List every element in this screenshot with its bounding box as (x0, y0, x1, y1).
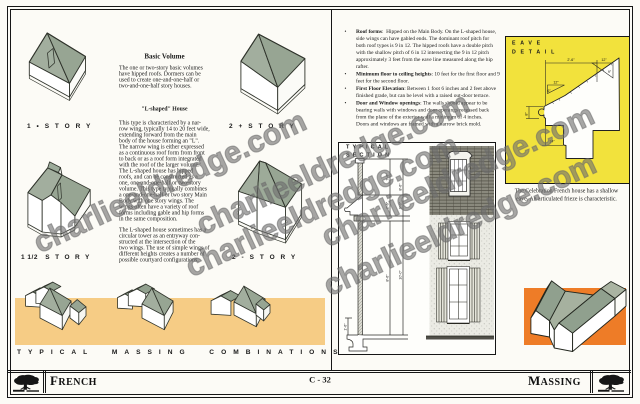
svg-text:12": 12" (601, 58, 607, 62)
svg-text:14": 14" (549, 140, 555, 144)
svg-text:7'-6": 7'-6" (385, 173, 389, 181)
svg-text:12": 12" (553, 81, 559, 85)
svg-text:10'-0": 10'-0" (398, 270, 402, 280)
svg-text:9'-0": 9'-0" (398, 201, 402, 209)
svg-text:8'-6": 8'-6" (398, 183, 402, 191)
svg-text:8": 8" (525, 112, 529, 116)
svg-text:1'-6": 1'-6" (343, 323, 347, 331)
svg-text:2'-6": 2'-6" (385, 201, 389, 209)
svg-text:2'-6": 2'-6" (567, 58, 575, 62)
svg-text:8'-6": 8'-6" (385, 274, 389, 282)
svg-text:6": 6" (547, 89, 551, 93)
